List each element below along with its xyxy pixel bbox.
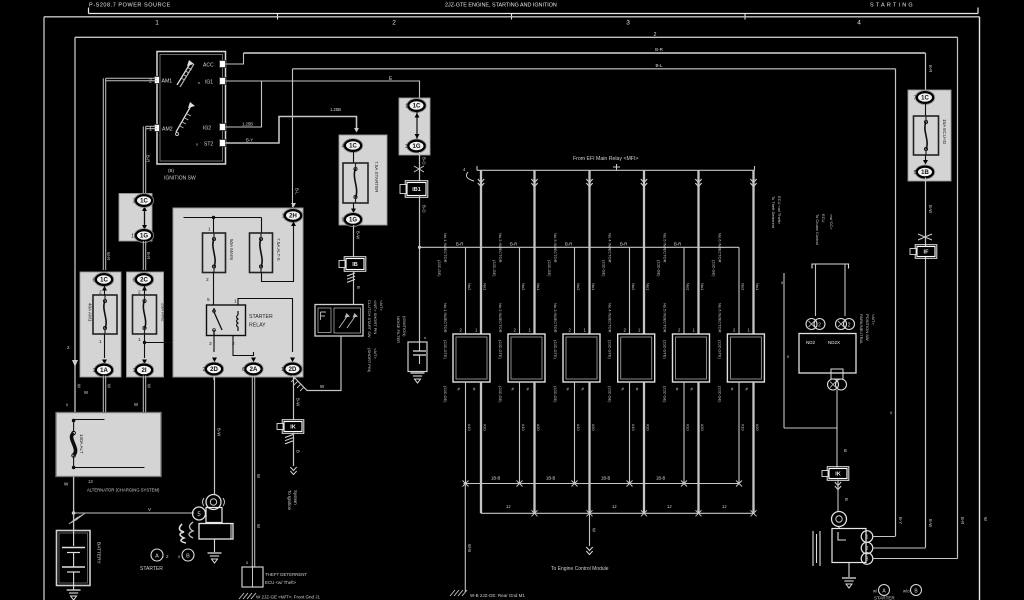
svg-text:#20: #20 xyxy=(700,424,705,431)
svg-text:W: W xyxy=(107,384,112,388)
svg-text:(2JZ-GTE): (2JZ-GTE) xyxy=(608,340,613,360)
svg-text:#20: #20 xyxy=(591,424,596,431)
svg-text:2C: 2C xyxy=(140,278,148,284)
svg-text:<A/T>: <A/T> xyxy=(379,300,384,312)
svg-text:No2: No2 xyxy=(521,283,526,291)
svg-text:W: W xyxy=(77,384,82,388)
svg-text:W 2JZ-GE <M/T>: Front Gnd J1: W 2JZ-GE <M/T>: Front Gnd J1 xyxy=(256,595,321,600)
svg-text:1B-B: 1B-B xyxy=(656,476,666,481)
svg-text:B-R: B-R xyxy=(960,517,965,524)
svg-text:No.1 INJECTOR: No.1 INJECTOR xyxy=(443,303,448,333)
svg-text:B-L: B-L xyxy=(295,188,300,195)
svg-text:IF: IF xyxy=(924,250,930,256)
svg-text:#10: #10 xyxy=(467,424,472,431)
svg-text:2: 2 xyxy=(202,367,205,373)
svg-text:No2: No2 xyxy=(576,283,581,291)
svg-text:7: 7 xyxy=(913,96,916,102)
svg-text:1J: 1J xyxy=(612,504,616,509)
svg-text:No2: No2 xyxy=(631,283,636,291)
svg-text:2: 2 xyxy=(392,20,396,27)
svg-text:w/o: w/o xyxy=(903,589,910,594)
svg-text:RELAY: RELAY xyxy=(249,323,266,329)
svg-text:1: 1 xyxy=(132,368,135,374)
svg-text:No1: No1 xyxy=(591,283,596,291)
svg-text:ECU: ECU xyxy=(821,214,826,223)
svg-text:B-W: B-W xyxy=(928,519,933,527)
svg-text:12: 12 xyxy=(131,234,137,240)
svg-text:1: 1 xyxy=(138,337,141,343)
svg-text:1: 1 xyxy=(234,299,237,305)
svg-text:W: W xyxy=(256,524,261,528)
svg-text:1C: 1C xyxy=(413,104,421,110)
svg-text:No.5 INJECTOR: No.5 INJECTOR xyxy=(663,233,668,263)
svg-text:1: 1 xyxy=(405,104,408,110)
svg-text:AM2: AM2 xyxy=(162,127,173,133)
svg-text:1B-B: 1B-B xyxy=(601,476,611,481)
svg-text:2: 2 xyxy=(818,323,821,329)
svg-text:B-R: B-R xyxy=(146,252,151,259)
svg-text:No1: No1 xyxy=(700,283,705,291)
svg-text:1C: 1C xyxy=(921,96,929,102)
svg-text:<A/T>: <A/T> xyxy=(871,314,876,326)
svg-text:No.6 INJECTOR: No.6 INJECTOR xyxy=(717,303,722,333)
svg-text:No.2 INJECTOR: No.2 INJECTOR xyxy=(498,303,503,333)
svg-text:#10: #10 xyxy=(576,424,581,431)
svg-text:#20: #20 xyxy=(536,424,541,431)
svg-text:x: x xyxy=(198,80,200,85)
svg-text:<w/ CC>: <w/ CC> xyxy=(829,214,834,230)
svg-text:6: 6 xyxy=(242,367,245,373)
svg-text:B-W: B-W xyxy=(928,205,933,213)
svg-text:(2JZ-GE): (2JZ-GE) xyxy=(498,386,503,403)
svg-text:W: W xyxy=(256,474,261,478)
svg-text:W-R: W-R xyxy=(106,252,111,260)
svg-text:W-B 2JZ-GE: Rear Gnd M1: W-B 2JZ-GE: Rear Gnd M1 xyxy=(470,593,525,598)
svg-text:B-R: B-R xyxy=(565,242,572,247)
svg-text:To Ignition: To Ignition xyxy=(287,490,292,511)
svg-text:2: 2 xyxy=(206,277,209,283)
svg-text:B-R: B-R xyxy=(146,155,151,162)
svg-text:2I: 2I xyxy=(141,368,146,374)
svg-text:(2JZ-GE): (2JZ-GE) xyxy=(711,260,716,277)
svg-text:(SHORT PIN): (SHORT PIN) xyxy=(367,348,372,373)
svg-text:(2JZ-GE): (2JZ-GE) xyxy=(657,260,662,277)
svg-text:CLUTCH START SW: CLUTCH START SW xyxy=(367,300,372,338)
svg-text:W: W xyxy=(84,390,88,395)
svg-text:NOISE FILTER: NOISE FILTER xyxy=(396,316,401,343)
svg-text:1J: 1J xyxy=(722,504,726,509)
svg-text:B: B xyxy=(296,450,301,453)
svg-text:1: 1 xyxy=(866,535,869,541)
svg-text:ND2X: ND2X xyxy=(828,340,840,345)
svg-text:(2JZ-GE): (2JZ-GE) xyxy=(608,386,613,403)
svg-text:1: 1 xyxy=(149,127,152,133)
svg-text:POSITION SW: POSITION SW xyxy=(865,314,870,341)
svg-text:B-Y: B-Y xyxy=(898,517,903,524)
svg-text:No.4 INJECTOR: No.4 INJECTOR xyxy=(608,303,613,333)
svg-text:2: 2 xyxy=(149,79,152,85)
svg-text:B-R: B-R xyxy=(510,242,517,247)
svg-text:x: x xyxy=(196,142,198,147)
svg-text:5: 5 xyxy=(207,297,210,303)
svg-text:B: B xyxy=(844,498,849,501)
svg-text:50A MAIN: 50A MAIN xyxy=(229,239,234,260)
svg-text:2D: 2D xyxy=(210,367,218,373)
svg-text:2: 2 xyxy=(654,32,657,38)
svg-text:2H: 2H xyxy=(289,214,297,220)
svg-text:W: W xyxy=(134,402,138,407)
svg-text:B-W: B-W xyxy=(217,428,222,436)
svg-text:4: 4 xyxy=(857,20,861,27)
svg-text:B-L: B-L xyxy=(655,63,663,68)
svg-text:1: 1 xyxy=(99,339,102,345)
svg-text:STARTER: STARTER xyxy=(249,314,273,320)
svg-text:B-W: B-W xyxy=(296,398,301,406)
svg-text:20A AM2: 20A AM2 xyxy=(161,303,166,322)
svg-text:#10: #10 xyxy=(686,424,691,431)
svg-text:1B-B: 1B-B xyxy=(546,476,556,481)
svg-text:#10: #10 xyxy=(521,424,526,431)
svg-text:1: 1 xyxy=(155,20,159,27)
svg-text:IB1: IB1 xyxy=(412,187,421,193)
svg-text:IK: IK xyxy=(835,472,841,478)
svg-text:ECU <w/ Theft>: ECU <w/ Theft> xyxy=(777,196,782,225)
svg-text:To Engine Control Module: To Engine Control Module xyxy=(551,566,609,572)
svg-text:No.3 INJECTOR: No.3 INJECTOR xyxy=(553,303,558,333)
svg-text:1B: 1B xyxy=(921,170,929,176)
svg-text:No1: No1 xyxy=(536,283,541,291)
svg-text:ST2: ST2 xyxy=(204,142,213,148)
svg-text:B: B xyxy=(844,448,847,453)
svg-text:B-Y: B-Y xyxy=(246,138,253,143)
svg-text:B-R: B-R xyxy=(674,242,681,247)
svg-text:(2JZ-GTE): (2JZ-GTE) xyxy=(553,340,558,360)
svg-text:1C: 1C xyxy=(100,278,108,284)
svg-text:No.2 INJECTOR: No.2 INJECTOR xyxy=(498,233,503,263)
svg-text:6: 6 xyxy=(132,278,135,284)
svg-text:ECU <w/ Theft>: ECU <w/ Theft> xyxy=(265,580,297,585)
svg-text:B-R: B-R xyxy=(928,65,933,72)
svg-text:(2JZ-GE): (2JZ-GE) xyxy=(553,386,558,403)
svg-text:STARTING: STARTING xyxy=(870,3,915,9)
svg-text:No1: No1 xyxy=(755,283,760,291)
svg-text:1J: 1J xyxy=(506,504,510,509)
svg-text:B: B xyxy=(356,286,361,289)
svg-text:B-R: B-R xyxy=(620,242,627,247)
svg-text:4: 4 xyxy=(341,144,344,150)
svg-text:IGNITION SW: IGNITION SW xyxy=(164,176,196,182)
svg-text:No.3 INJECTOR: No.3 INJECTOR xyxy=(553,233,558,263)
svg-text:(2JZ-GTE): (2JZ-GTE) xyxy=(498,340,503,360)
svg-text:W-B: W-B xyxy=(467,544,472,552)
svg-text:ACC: ACC xyxy=(203,63,214,69)
svg-text:(2JZ-GE): (2JZ-GE) xyxy=(717,386,722,403)
svg-text:3: 3 xyxy=(132,199,135,205)
svg-text:2A: 2A xyxy=(250,367,258,373)
svg-text:1: 1 xyxy=(281,367,284,373)
svg-text:1A: 1A xyxy=(100,368,108,374)
svg-text:1J: 1J xyxy=(667,504,671,509)
svg-text:No1: No1 xyxy=(483,283,488,291)
svg-text:7.5A ALT-S: 7.5A ALT-S xyxy=(276,238,281,261)
svg-text:2: 2 xyxy=(866,546,869,552)
svg-text:STARTER: STARTER xyxy=(874,596,895,600)
svg-text:To Theft Deterrent: To Theft Deterrent xyxy=(771,196,776,229)
svg-text:#20: #20 xyxy=(483,424,488,431)
svg-text:No.5 INJECTOR: No.5 INJECTOR xyxy=(663,303,668,333)
svg-text:P-S208.7 POWER SOURCE: P-S208.7 POWER SOURCE xyxy=(89,3,171,9)
svg-text:AM1: AM1 xyxy=(162,79,173,85)
svg-text:#10: #10 xyxy=(741,424,746,431)
svg-text:1G: 1G xyxy=(140,234,148,240)
svg-text:B-W: B-W xyxy=(356,231,361,239)
svg-text:B: B xyxy=(186,554,190,560)
svg-text:5: 5 xyxy=(913,170,916,176)
svg-text:1C: 1C xyxy=(140,199,148,205)
svg-text:3: 3 xyxy=(405,144,408,150)
svg-text:2D: 2D xyxy=(289,367,297,373)
svg-text:(2JZ-GE): (2JZ-GE) xyxy=(602,260,607,277)
svg-text:1.25B: 1.25B xyxy=(242,122,253,127)
svg-text:A: A xyxy=(155,554,159,560)
svg-text:2: 2 xyxy=(848,323,851,329)
svg-text:W: W xyxy=(147,384,152,388)
svg-text:6: 6 xyxy=(92,278,95,284)
svg-text:No2: No2 xyxy=(686,283,691,291)
svg-text:3: 3 xyxy=(866,557,869,563)
svg-text:No.6 INJECTOR: No.6 INJECTOR xyxy=(717,233,722,263)
svg-text:PARK/NEUTRAL: PARK/NEUTRAL xyxy=(859,314,864,345)
svg-text:W: W xyxy=(983,517,988,521)
svg-text:3: 3 xyxy=(626,20,630,27)
svg-text:1B-B: 1B-B xyxy=(491,476,501,481)
svg-text:B-R: B-R xyxy=(655,47,664,52)
svg-text:3: 3 xyxy=(209,341,212,347)
svg-text:15A ECU-IG: 15A ECU-IG xyxy=(942,119,947,145)
svg-text:To Cruise Control: To Cruise Control xyxy=(815,214,820,245)
svg-text:1: 1 xyxy=(208,227,211,233)
svg-text:(2JZ-GTE): (2JZ-GTE) xyxy=(717,340,722,360)
svg-text:B-O: B-O xyxy=(422,157,427,165)
svg-text:1C: 1C xyxy=(349,144,357,150)
svg-text:No.4 INJECTOR: No.4 INJECTOR xyxy=(608,233,613,263)
svg-text:2JZ-GTE ENGINE, STARTING AND I: 2JZ-GTE ENGINE, STARTING AND IGNITION xyxy=(445,3,557,9)
svg-text:B-R: B-R xyxy=(456,242,463,247)
svg-text:40A AM1: 40A AM1 xyxy=(88,303,93,322)
svg-text:#20: #20 xyxy=(755,424,760,431)
svg-text:(B): (B) xyxy=(168,168,175,173)
svg-text:1G: 1G xyxy=(349,218,357,224)
svg-text:IK: IK xyxy=(290,425,296,431)
svg-text:(2JZ-GE): (2JZ-GE) xyxy=(443,386,448,403)
svg-text:THEFT DETERRENT: THEFT DETERRENT xyxy=(265,572,307,577)
svg-text:7.5A STARTER: 7.5A STARTER xyxy=(374,161,379,193)
svg-text:1: 1 xyxy=(92,368,95,374)
svg-text:STARTER: STARTER xyxy=(140,566,163,572)
svg-text:(2JZ-GE): (2JZ-GE) xyxy=(547,260,552,277)
svg-text:#20: #20 xyxy=(646,424,651,431)
svg-text:(2JZ-GE): (2JZ-GE) xyxy=(437,260,442,277)
svg-text:(2JZ-GE): (2JZ-GE) xyxy=(663,386,668,403)
svg-text:B-O: B-O xyxy=(422,205,427,213)
svg-text:IB: IB xyxy=(352,262,358,268)
svg-text:<A/T>: <A/T> xyxy=(373,348,378,360)
svg-text:From EFI Main Relay <MFI>: From EFI Main Relay <MFI> xyxy=(573,156,638,162)
svg-text:No2: No2 xyxy=(741,283,746,291)
svg-text:(2JZ-GE): (2JZ-GE) xyxy=(492,260,497,277)
svg-text:No.1 INJECTOR: No.1 INJECTOR xyxy=(443,233,448,263)
svg-text:ALTERNATOR (CHARGING SYSTEM): ALTERNATOR (CHARGING SYSTEM) xyxy=(87,488,160,493)
svg-text:IG1: IG1 xyxy=(205,80,213,86)
svg-text:1.25B: 1.25B xyxy=(330,107,341,112)
svg-text:(2JZ-GTE): (2JZ-GTE) xyxy=(663,340,668,360)
svg-text:140A ALT: 140A ALT xyxy=(79,434,84,454)
svg-text:V: V xyxy=(148,507,151,512)
svg-text:(IGNITION): (IGNITION) xyxy=(402,316,407,337)
svg-text:13: 13 xyxy=(88,479,93,484)
svg-text:9: 9 xyxy=(341,218,344,224)
svg-text:BATTERY: BATTERY xyxy=(96,542,102,564)
svg-text:No1: No1 xyxy=(646,283,651,291)
svg-text:1: 1 xyxy=(281,214,284,220)
svg-text:#10: #10 xyxy=(631,424,636,431)
svg-text:ND2: ND2 xyxy=(806,340,815,345)
svg-text:No2: No2 xyxy=(467,283,472,291)
svg-text:IG2: IG2 xyxy=(203,126,211,132)
svg-text:System: System xyxy=(293,490,298,505)
svg-text:<M/T> SHORT PIN: <M/T> SHORT PIN xyxy=(373,300,378,334)
svg-text:W: W xyxy=(592,528,597,532)
svg-text:x: x xyxy=(424,335,426,340)
svg-text:(2JZ-GTE): (2JZ-GTE) xyxy=(443,340,448,360)
svg-text:1G: 1G xyxy=(412,144,420,150)
